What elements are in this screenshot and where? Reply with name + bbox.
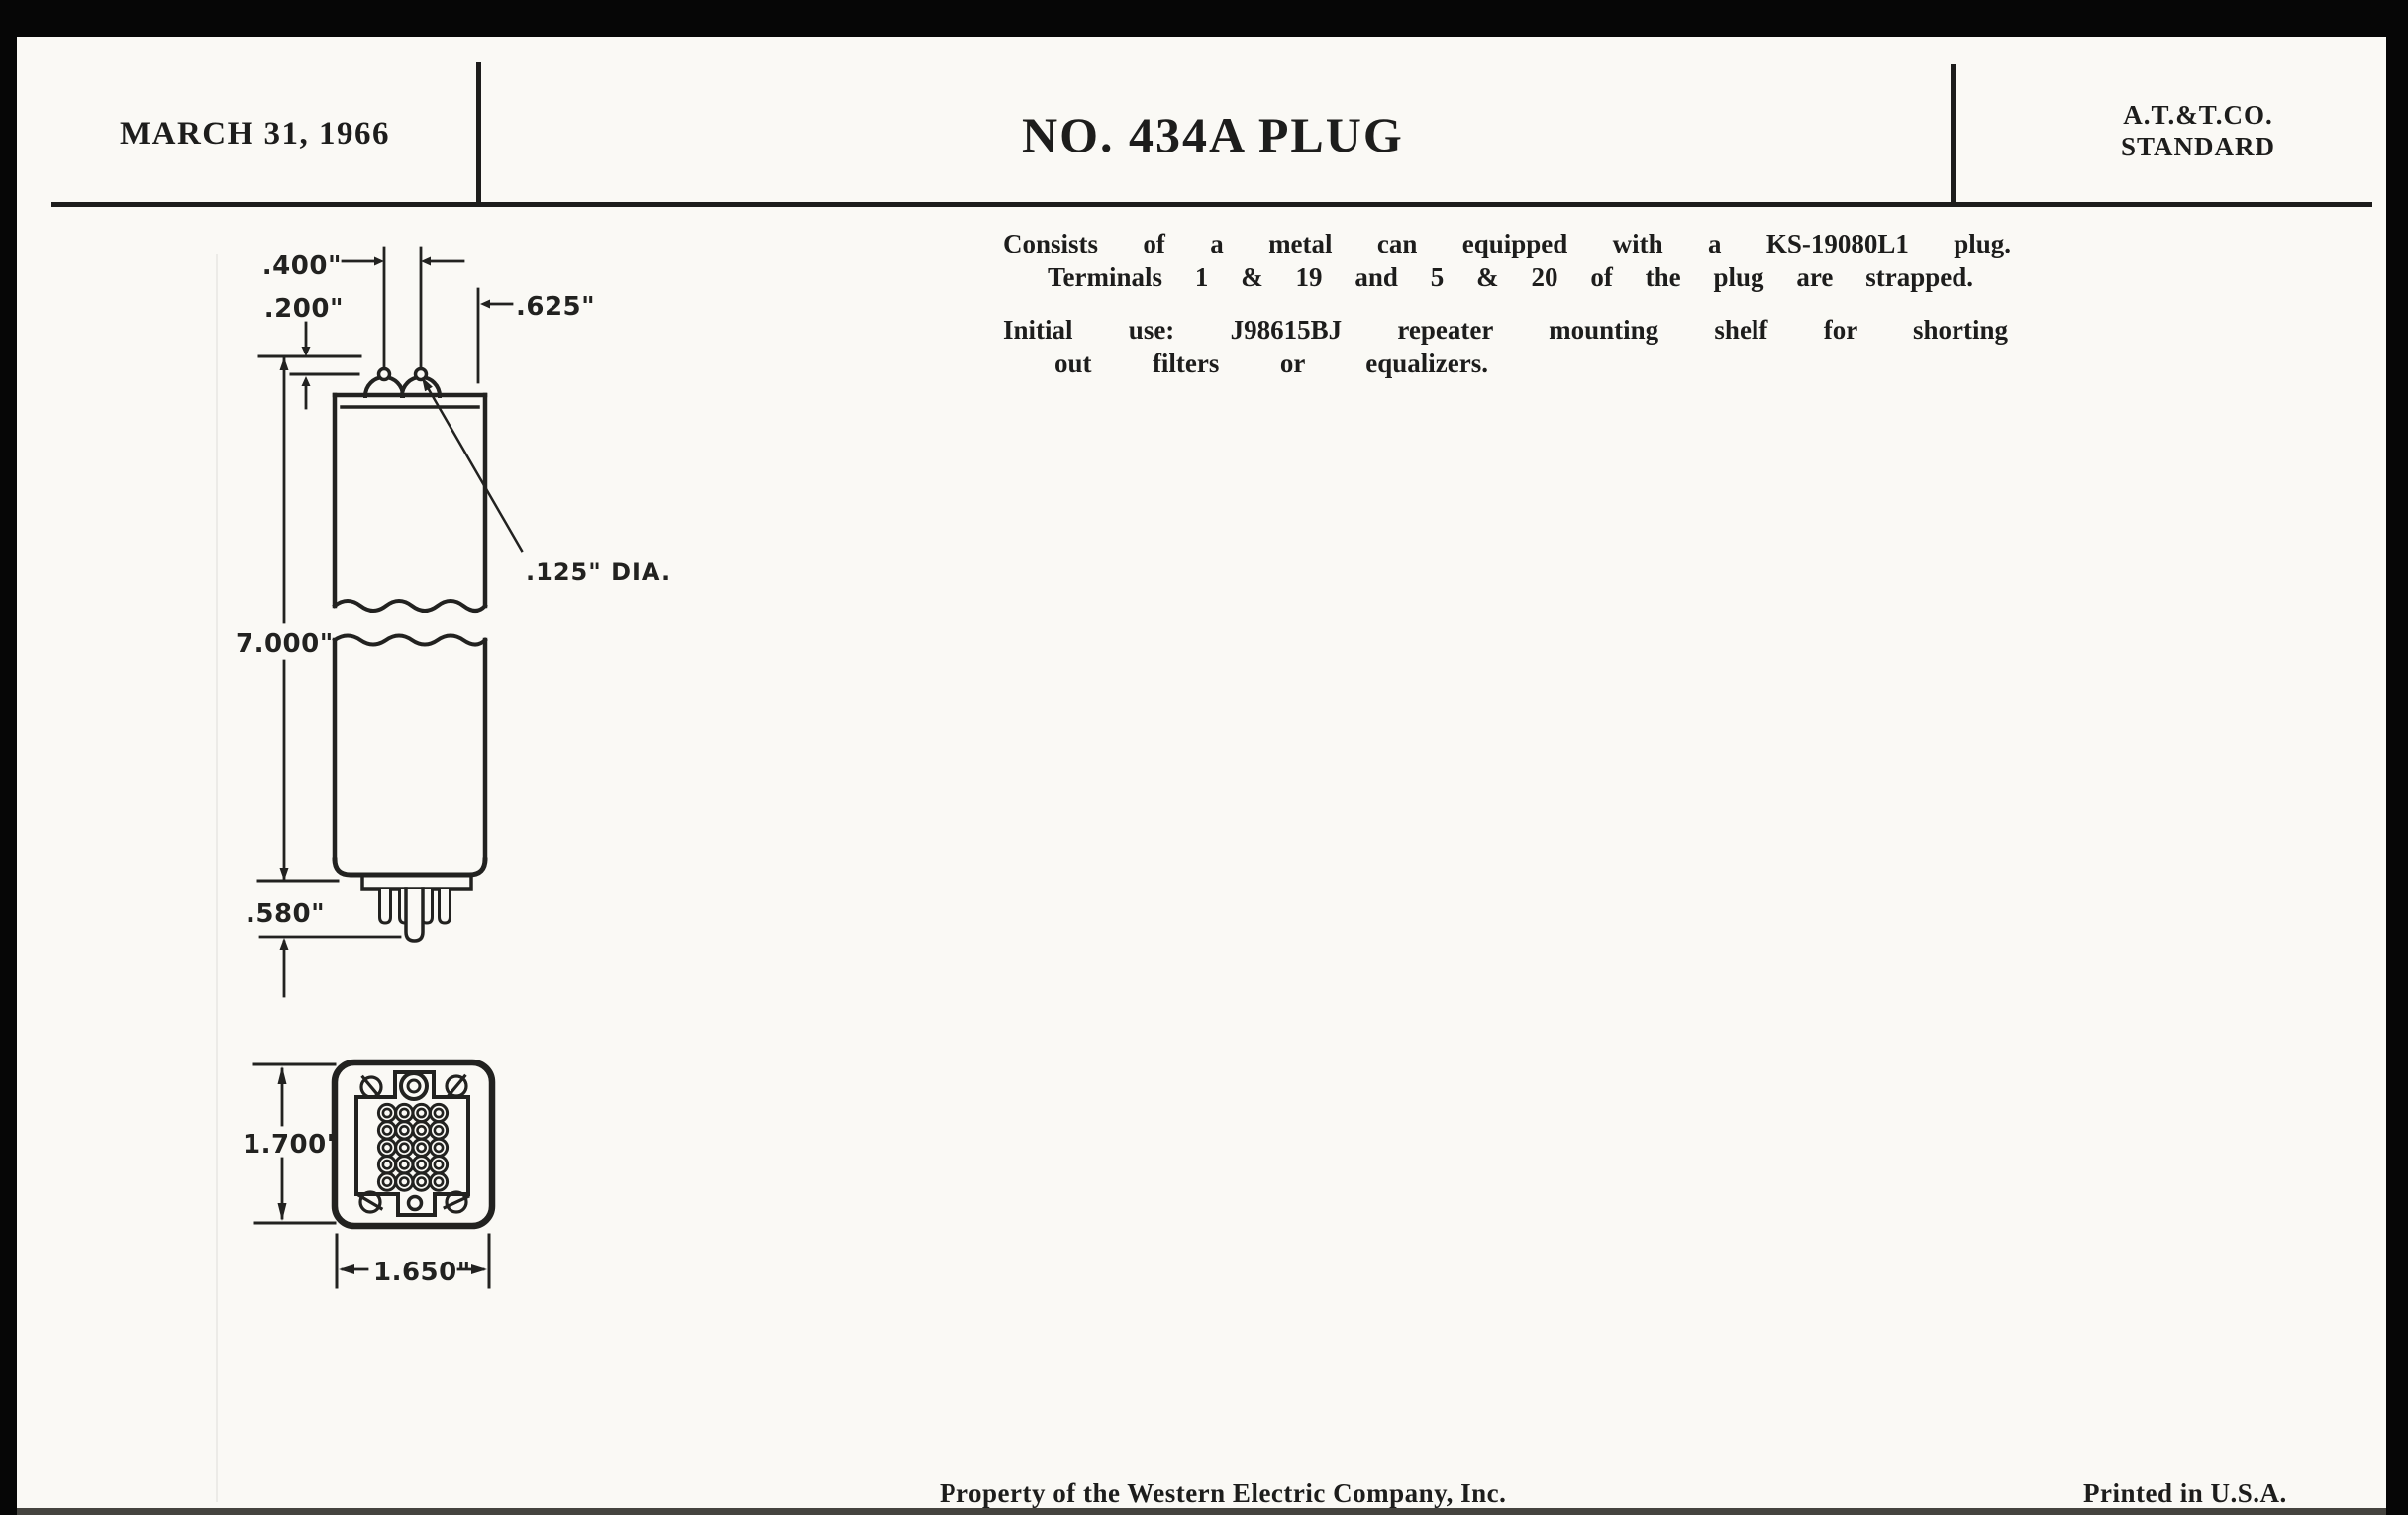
plug-face-view — [335, 1062, 492, 1226]
dim-label-1650: 1.650" — [373, 1258, 471, 1287]
description-line-2: Terminals 1 & 19 and 5 & 20 of the plug … — [1048, 260, 1973, 294]
header-divider-right — [1951, 64, 1956, 204]
printed-notice: Printed in U.S.A. — [2083, 1478, 2287, 1509]
header-rule — [51, 202, 2372, 207]
left-ear-hole — [379, 369, 390, 380]
plug-pins-side — [380, 889, 451, 941]
index-hole — [409, 1197, 422, 1210]
header-divider-left — [476, 62, 481, 204]
description-line-4: out filters or equalizers. — [1054, 347, 1488, 380]
standard-stamp: A.T.&T.CO. STANDARD — [2059, 99, 2337, 162]
dim-label-580: .580" — [246, 899, 325, 929]
dim-label-625: .625" — [516, 292, 595, 322]
dim-label-400: .400" — [262, 252, 342, 281]
dim-label-1700: 1.700" — [243, 1130, 341, 1160]
dim-label-125-dia: .125" DIA. — [526, 558, 671, 586]
description-line-1: Consists of a metal can equipped with a … — [1003, 227, 2011, 260]
side-view-dimensions — [258, 248, 522, 996]
standard-stamp-line2: STANDARD — [2059, 131, 2337, 162]
page-title: NO. 434A PLUG — [1022, 106, 1404, 163]
plug-side-view — [335, 369, 485, 942]
property-notice: Property of the Western Electric Company… — [940, 1478, 1506, 1509]
hole-dia-leader — [423, 379, 522, 551]
scan-bottom-edge — [17, 1508, 2386, 1515]
right-ear-hole — [416, 369, 427, 380]
dim-label-7000: 7.000" — [236, 629, 334, 658]
center-guide-pin — [406, 889, 423, 941]
technical-drawing: .400" .200" .625" .125" DIA. 7.000" .580… — [139, 238, 713, 1327]
description-line-3: Initial use: J98615BJ repeater mounting … — [1003, 313, 2008, 347]
terminal-pin-grid — [378, 1104, 447, 1190]
document-date: MARCH 31, 1966 — [120, 116, 390, 152]
standard-stamp-line1: A.T.&T.CO. — [2059, 99, 2337, 131]
break-line-top — [335, 601, 485, 611]
keying-bushing — [401, 1073, 427, 1099]
break-line-bottom — [335, 636, 485, 645]
dim-label-200: .200" — [264, 294, 344, 324]
document-page: MARCH 31, 1966 NO. 434A PLUG A.T.&T.CO. … — [17, 37, 2386, 1515]
